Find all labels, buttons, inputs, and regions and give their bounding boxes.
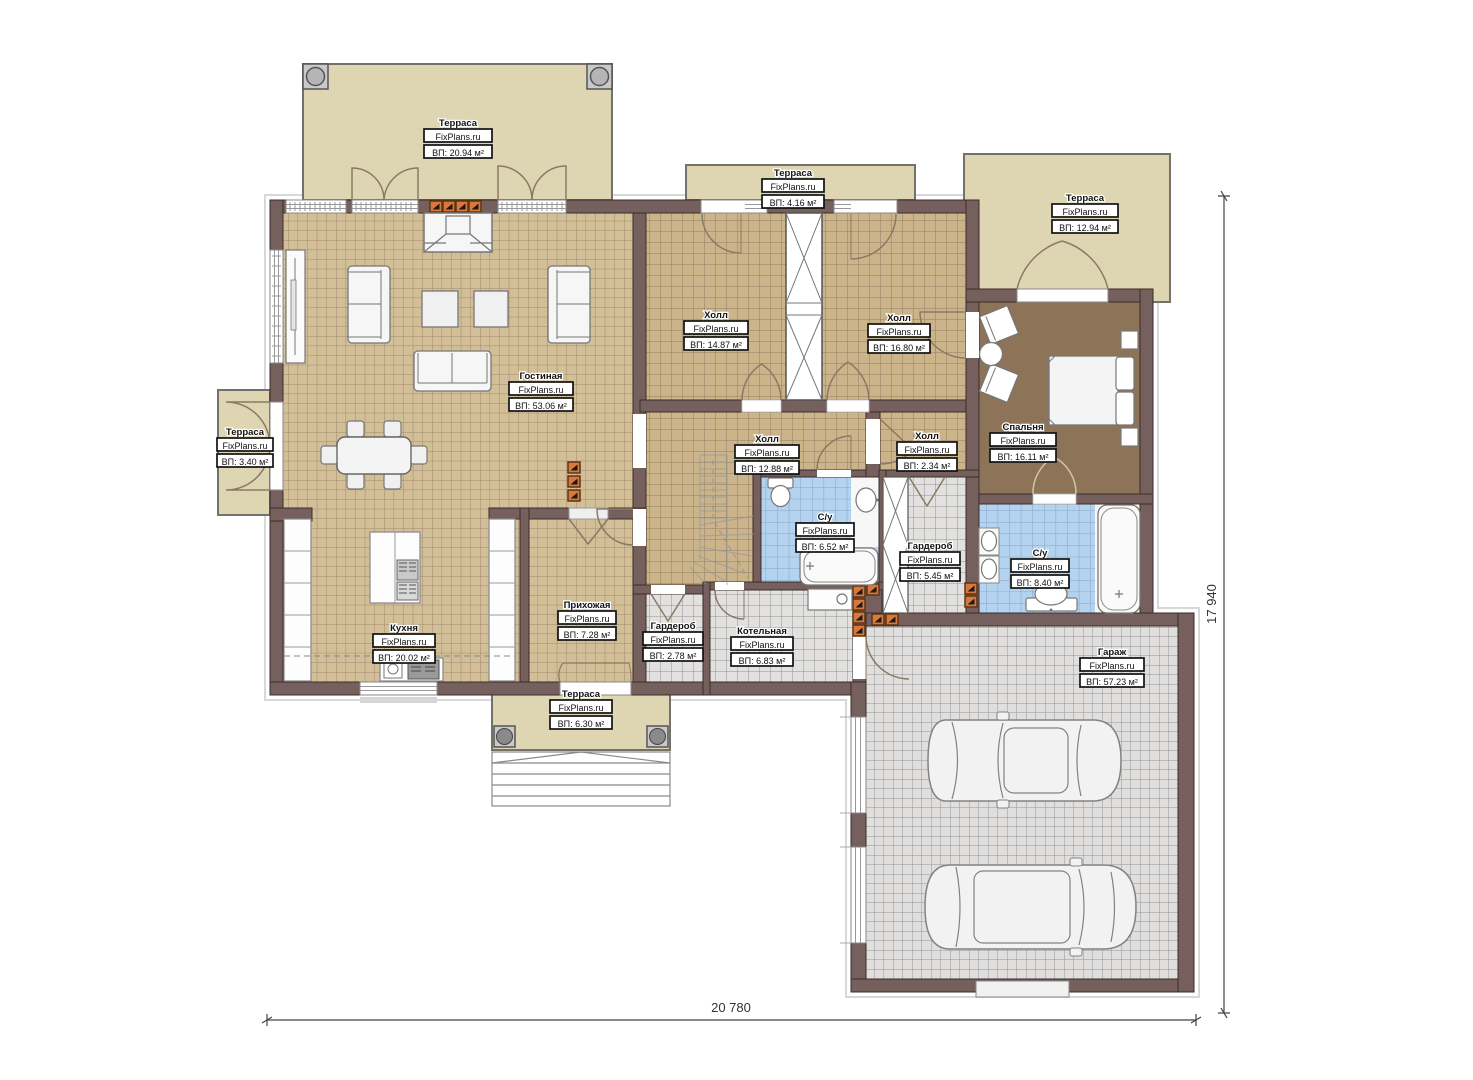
svg-text:ВП: 4.16 м²: ВП: 4.16 м² [770,198,817,208]
svg-text:Терраса: Терраса [226,427,265,438]
svg-text:ВП: 8.40 м²: ВП: 8.40 м² [1017,578,1064,588]
svg-text:FixPlans.ru: FixPlans.ru [558,703,603,713]
svg-text:Гардероб: Гардероб [908,541,953,552]
svg-text:С/у: С/у [818,512,834,523]
svg-text:Терраса: Терраса [774,168,813,179]
svg-text:ВП: 53.06 м²: ВП: 53.06 м² [515,401,567,411]
svg-text:FixPlans.ru: FixPlans.ru [693,324,738,334]
svg-text:17 940: 17 940 [1204,584,1219,624]
svg-text:FixPlans.ru: FixPlans.ru [518,385,563,395]
svg-text:ВП: 6.83 м²: ВП: 6.83 м² [739,656,786,666]
svg-text:Терраса: Терраса [439,118,478,129]
svg-text:ВП: 16.11 м²: ВП: 16.11 м² [997,452,1048,462]
svg-text:ВП: 57.23 м²: ВП: 57.23 м² [1086,677,1138,687]
svg-text:С/у: С/у [1033,548,1049,559]
svg-text:FixPlans.ru: FixPlans.ru [802,526,847,536]
svg-text:FixPlans.ru: FixPlans.ru [1017,562,1062,572]
svg-text:Холл: Холл [704,310,728,321]
svg-text:FixPlans.ru: FixPlans.ru [650,635,695,645]
svg-text:ВП: 6.52 м²: ВП: 6.52 м² [802,542,849,552]
svg-text:ВП: 7.28 м²: ВП: 7.28 м² [564,630,611,640]
svg-text:FixPlans.ru: FixPlans.ru [907,555,952,565]
svg-text:Котельная: Котельная [737,626,787,637]
svg-text:ВП: 12.88 м²: ВП: 12.88 м² [741,464,793,474]
svg-text:ВП: 5.45 м²: ВП: 5.45 м² [907,571,954,581]
svg-text:ВП: 2.34 м²: ВП: 2.34 м² [904,461,951,471]
svg-text:FixPlans.ru: FixPlans.ru [381,637,426,647]
svg-text:FixPlans.ru: FixPlans.ru [222,441,267,451]
svg-text:Гараж: Гараж [1098,647,1127,658]
svg-text:FixPlans.ru: FixPlans.ru [1000,436,1045,446]
svg-text:FixPlans.ru: FixPlans.ru [739,640,784,650]
svg-text:Терраса: Терраса [562,689,601,700]
svg-text:ВП: 2.78 м²: ВП: 2.78 м² [650,651,697,661]
svg-text:Холл: Холл [755,434,779,445]
svg-text:Спальня: Спальня [1002,422,1043,433]
svg-text:ВП: 14.87 м²: ВП: 14.87 м² [690,340,742,350]
svg-text:ВП: 20.94 м²: ВП: 20.94 м² [432,148,484,158]
svg-text:ВП: 20.02 м²: ВП: 20.02 м² [378,653,430,663]
svg-text:ВП: 12.94 м²: ВП: 12.94 м² [1059,223,1111,233]
svg-text:Кухня: Кухня [390,623,418,634]
svg-text:Прихожая: Прихожая [564,600,611,611]
svg-text:FixPlans.ru: FixPlans.ru [435,132,480,142]
svg-text:Холл: Холл [887,313,911,324]
svg-text:FixPlans.ru: FixPlans.ru [1089,661,1134,671]
svg-text:ВП: 16.80 м²: ВП: 16.80 м² [873,343,925,353]
svg-text:FixPlans.ru: FixPlans.ru [876,327,921,337]
svg-text:Гостиная: Гостиная [520,371,563,382]
svg-text:FixPlans.ru: FixPlans.ru [564,614,609,624]
svg-text:20 780: 20 780 [711,1000,751,1015]
svg-text:Холл: Холл [915,431,939,442]
svg-text:Гардероб: Гардероб [651,621,696,632]
svg-text:FixPlans.ru: FixPlans.ru [770,182,815,192]
svg-text:ВП: 3.40 м²: ВП: 3.40 м² [222,457,269,467]
svg-text:ВП: 6.30 м²: ВП: 6.30 м² [558,719,605,729]
svg-text:FixPlans.ru: FixPlans.ru [1062,207,1107,217]
svg-text:FixPlans.ru: FixPlans.ru [744,448,789,458]
svg-text:Терраса: Терраса [1066,193,1105,204]
svg-text:FixPlans.ru: FixPlans.ru [904,445,949,455]
